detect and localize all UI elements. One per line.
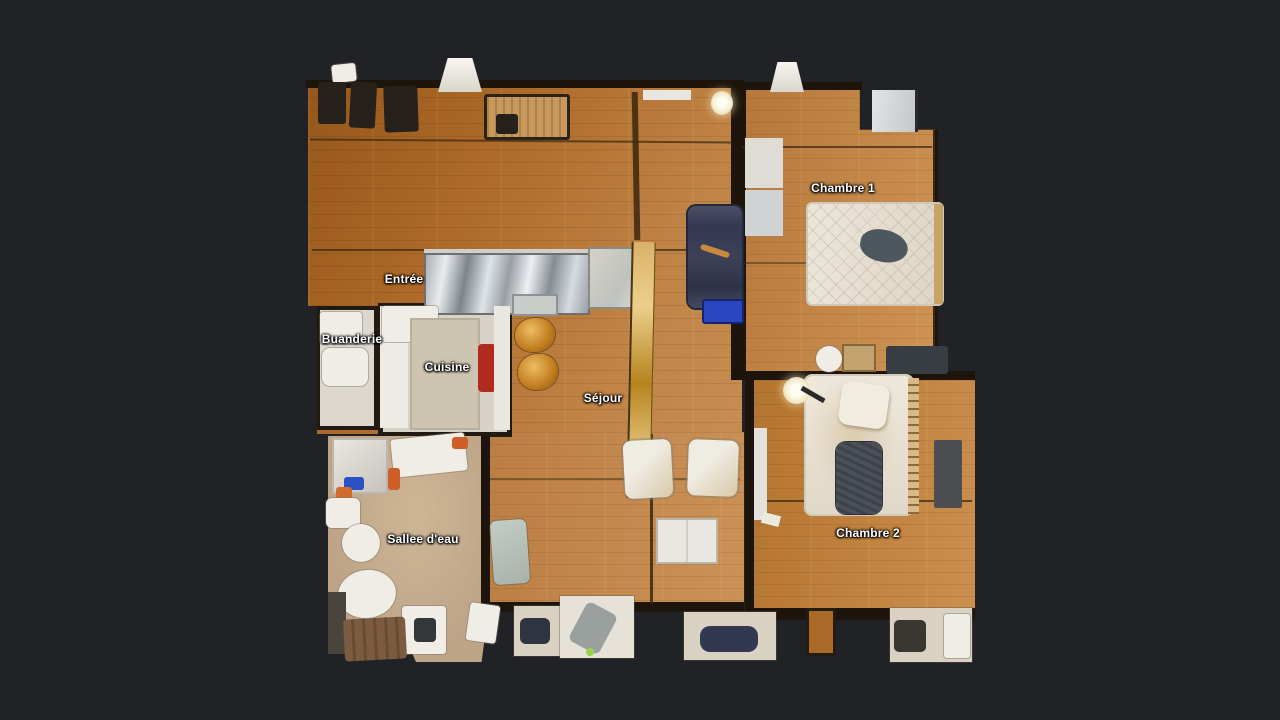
room-label-salle-deau: Sallee d'eau <box>387 532 458 546</box>
room-label-entree: Entrée <box>385 272 424 286</box>
dollhouse-viewer[interactable]: Chambre 1EntréeBuanderieCuisineSéjourSal… <box>0 0 1280 720</box>
room-label-buanderie: Buanderie <box>322 332 382 346</box>
room-label-chambre-2: Chambre 2 <box>836 526 900 540</box>
room-label-cuisine: Cuisine <box>425 360 470 374</box>
room-label-chambre-1: Chambre 1 <box>811 181 875 195</box>
room-label-sejour: Séjour <box>584 391 623 405</box>
room-labels-layer: Chambre 1EntréeBuanderieCuisineSéjourSal… <box>0 0 1280 720</box>
